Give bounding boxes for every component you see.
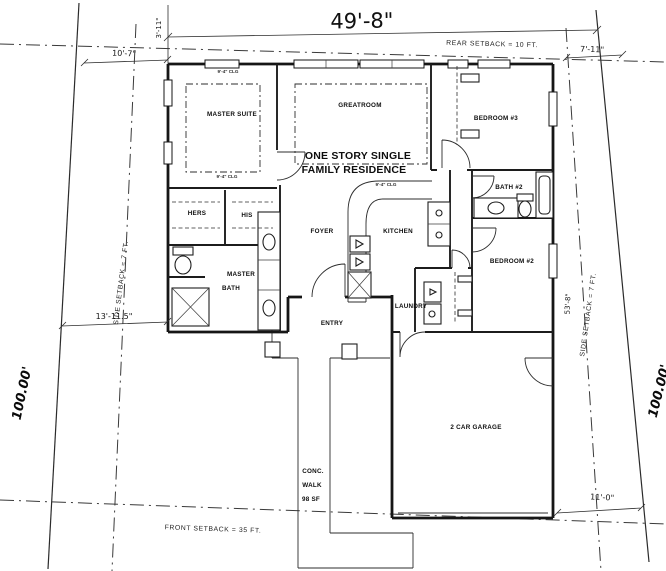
dim-lot-depth-right: 100.00' — [646, 363, 666, 419]
room-label-closet-his: HIS — [241, 212, 252, 219]
room-label-laundry: LAUNDRY — [395, 303, 428, 310]
room-label-bedroom2: BEDROOM #2 — [490, 258, 534, 265]
site-plan-svg: 49'-8" 10'-7" 7'-11" 3'-11" 13'-11.5" 53… — [0, 0, 666, 571]
room-label-master-bath-line2: BATH — [222, 285, 240, 292]
room-label-master-bath-line1: MASTER — [227, 271, 255, 278]
room-label-closet-hers: HERS — [188, 210, 207, 217]
dim-lot-depth-left: 100.00' — [10, 365, 36, 421]
clg-note-master-bottom: 9'-4" CLG — [217, 174, 238, 179]
room-label-kitchen: KITCHEN — [383, 228, 413, 235]
clg-note-great: 9'-4" CLG — [376, 182, 397, 187]
room-label-garage: 2 CAR GARAGE — [450, 424, 501, 431]
residence-title-line1: ONE STORY SINGLE — [305, 150, 411, 162]
dim-rear-left-offset: 10'-7" — [112, 49, 136, 59]
walk-label-line2: WALK — [302, 482, 322, 489]
dim-rear-top: 3'-11" — [155, 17, 163, 38]
setback-front-label: FRONT SETBACK = 35 FT. — [165, 524, 262, 534]
walk-label-line1: CONC. — [302, 468, 324, 475]
dim-garage-side-offset: 11'-0" — [590, 492, 614, 502]
setback-side-right-label: SIDE SETBACK = 7 FT. — [579, 273, 598, 357]
room-label-foyer: FOYER — [311, 228, 334, 235]
room-label-greatroom: GREATROOM — [338, 102, 381, 109]
room-label-bath2: BATH #2 — [495, 184, 523, 191]
clg-note-master-top: 9'-4" CLG — [218, 69, 239, 74]
room-label-bedroom3: BEDROOM #3 — [474, 115, 518, 122]
walk-label-line3: 98 SF — [302, 496, 320, 503]
setback-rear-label: REAR SETBACK = 10 FT. — [446, 40, 538, 49]
residence-title-line2: FAMILY RESIDENCE — [302, 164, 407, 176]
room-label-master-suite: MASTER SUITE — [207, 111, 257, 118]
room-label-entry: ENTRY — [321, 320, 344, 327]
floor-plan-sheet: 49'-8" 10'-7" 7'-11" 3'-11" 13'-11.5" 53… — [0, 0, 666, 571]
dim-house-width: 49'-8" — [330, 8, 394, 33]
dim-right-side-depth: 53'-8" — [563, 293, 572, 314]
dim-rear-right-offset: 7'-11" — [580, 45, 604, 55]
